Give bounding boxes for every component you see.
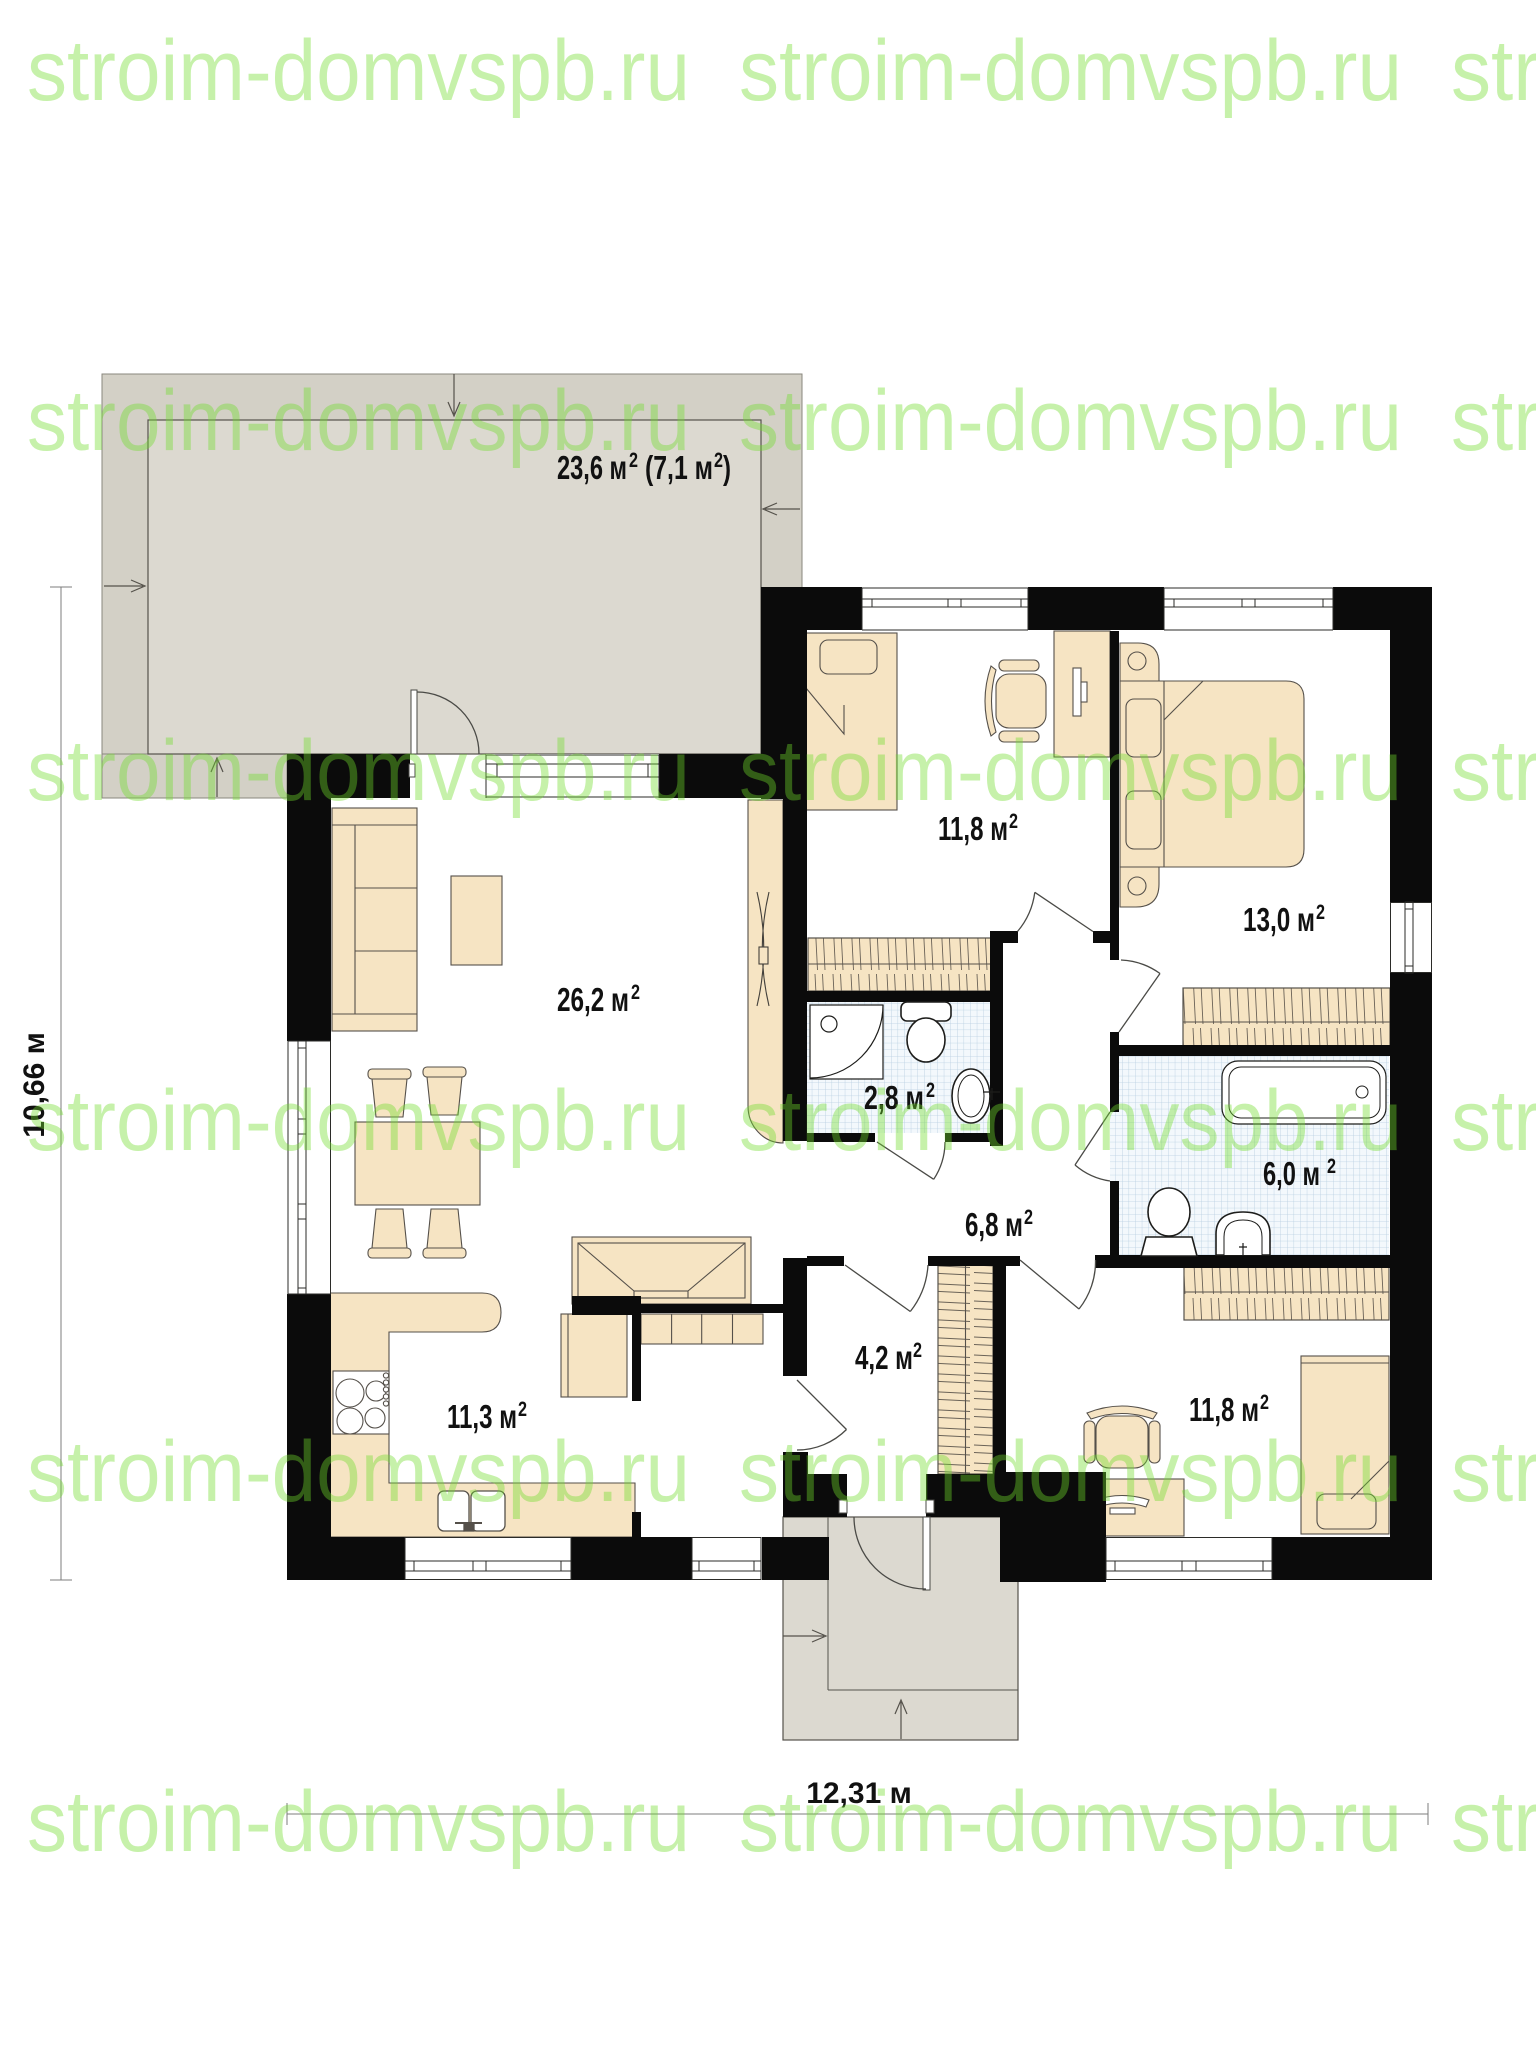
svg-text:stroim-domvspb.ru: stroim-domvspb.ru [739,373,1402,469]
svg-text:stroim-domvspb.ru: stroim-domvspb.ru [27,23,690,119]
svg-text:13,0 м: 13,0 м [1243,901,1315,938]
svg-text:stroim-domvspb.ru: stroim-domvspb.ru [1451,1424,1536,1520]
svg-text:2: 2 [714,449,723,472]
svg-text:stroim-domvspb.ru: stroim-domvspb.ru [27,723,690,819]
svg-text:2: 2 [1024,1206,1033,1229]
svg-text:stroim-domvspb.ru: stroim-domvspb.ru [739,1774,1402,1870]
svg-text:2: 2 [913,1339,922,1362]
svg-text:26,2 м: 26,2 м [557,981,629,1018]
svg-text:): ) [723,449,731,486]
svg-text:4,2 м: 4,2 м [855,1339,913,1376]
svg-text:11,8 м: 11,8 м [1189,1391,1259,1428]
svg-text:stroim-domvspb.ru: stroim-domvspb.ru [1451,1073,1536,1169]
svg-text:stroim-domvspb.ru: stroim-domvspb.ru [739,23,1402,119]
svg-text:stroim-domvspb.ru: stroim-domvspb.ru [27,1774,690,1870]
svg-text:stroim-domvspb.ru: stroim-domvspb.ru [739,1073,1402,1169]
svg-text:2: 2 [1316,901,1325,924]
svg-text:stroim-domvspb.ru: stroim-domvspb.ru [27,373,690,469]
svg-text:stroim-domvspb.ru: stroim-domvspb.ru [1451,23,1536,119]
svg-text:stroim-domvspb.ru: stroim-domvspb.ru [1451,723,1536,819]
svg-text:2: 2 [1260,1391,1269,1414]
svg-text:stroim-domvspb.ru: stroim-domvspb.ru [1451,373,1536,469]
svg-text:stroim-domvspb.ru: stroim-domvspb.ru [27,1424,690,1520]
svg-text:2: 2 [631,981,640,1004]
svg-text:stroim-domvspb.ru: stroim-domvspb.ru [739,723,1402,819]
svg-text:6,8 м: 6,8 м [965,1206,1023,1243]
svg-text:stroim-domvspb.ru: stroim-domvspb.ru [739,1424,1402,1520]
svg-text:stroim-domvspb.ru: stroim-domvspb.ru [1451,1774,1536,1870]
svg-text:2: 2 [518,1398,527,1421]
svg-text:stroim-domvspb.ru: stroim-domvspb.ru [27,1073,690,1169]
